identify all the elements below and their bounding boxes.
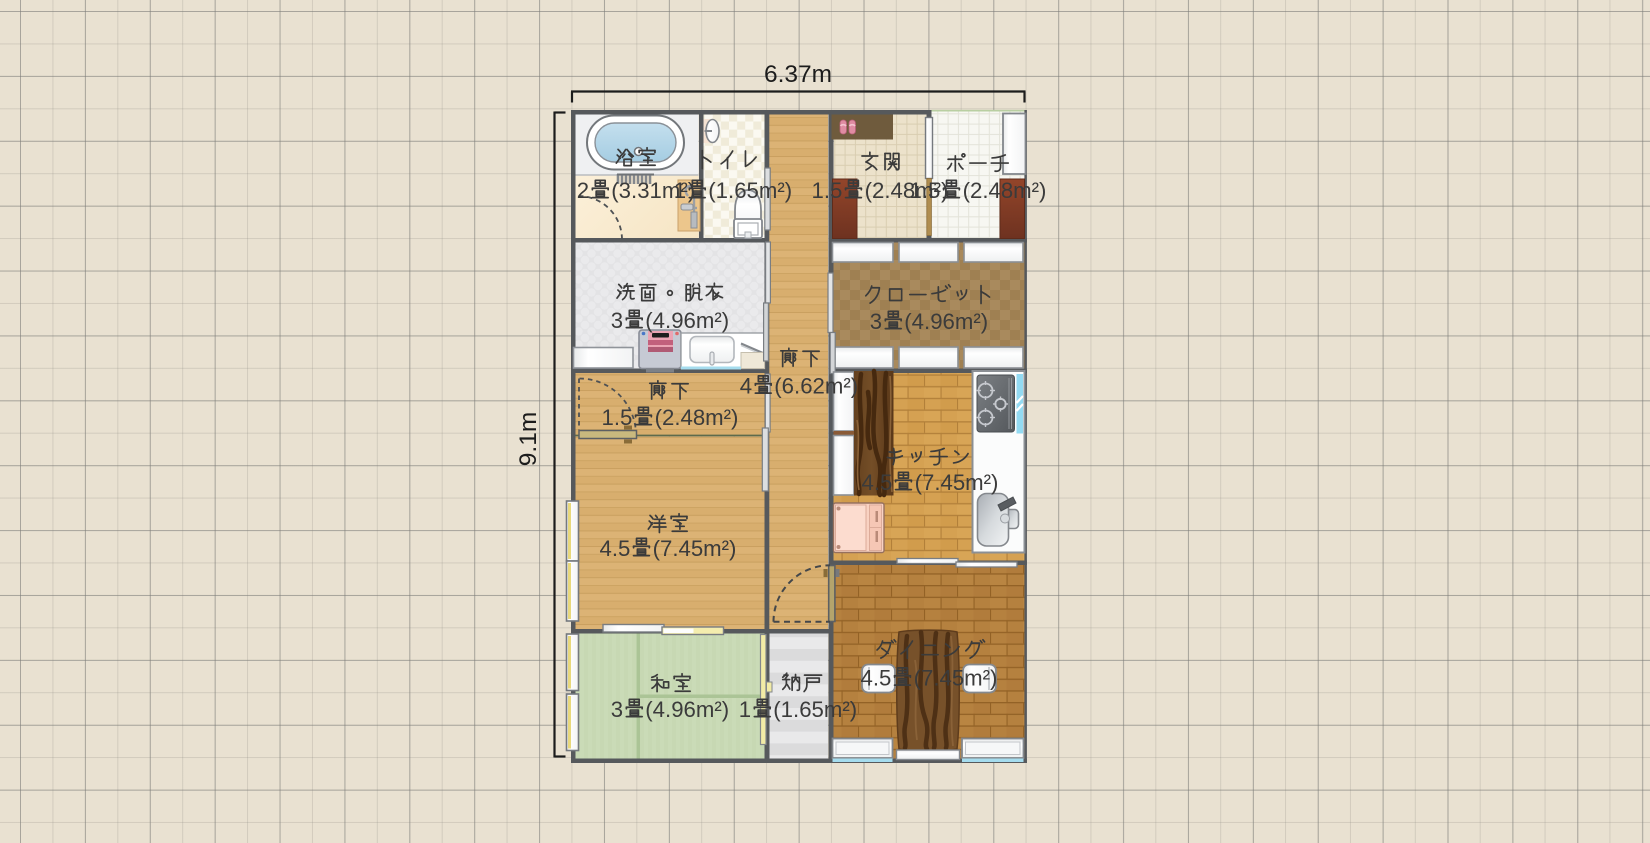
svg-text:3: 3 (611, 697, 623, 722)
svg-text:6.37m: 6.37m (764, 61, 832, 88)
svg-text:9.1m: 9.1m (515, 412, 542, 466)
svg-text:2: 2 (577, 178, 589, 203)
svg-text:(2.48m²): (2.48m²) (655, 405, 739, 430)
svg-text:1: 1 (674, 178, 686, 203)
svg-text:1.5: 1.5 (602, 405, 633, 430)
svg-text:1: 1 (739, 697, 751, 722)
svg-text:4: 4 (740, 374, 752, 399)
svg-text:(4.96m²): (4.96m²) (904, 309, 988, 334)
svg-text:(7.45m²): (7.45m²) (915, 470, 999, 495)
svg-text:1.5: 1.5 (910, 178, 941, 203)
svg-text:(4.96m²): (4.96m²) (645, 697, 729, 722)
svg-text:4.5: 4.5 (600, 536, 631, 561)
svg-text:3: 3 (870, 309, 882, 334)
svg-text:1.5: 1.5 (812, 178, 843, 203)
svg-text:3: 3 (611, 308, 623, 333)
svg-text:(7.45m²): (7.45m²) (914, 666, 998, 691)
svg-text:4.5: 4.5 (862, 470, 893, 495)
svg-text:(6.62m²): (6.62m²) (774, 374, 858, 399)
svg-text:(2.48m²): (2.48m²) (963, 178, 1047, 203)
svg-text:(1.65m²): (1.65m²) (773, 697, 857, 722)
svg-text:(4.96m²): (4.96m²) (645, 308, 729, 333)
svg-text:(7.45m²): (7.45m²) (653, 536, 737, 561)
svg-text:4.5: 4.5 (861, 666, 892, 691)
svg-text:(1.65m²): (1.65m²) (708, 178, 792, 203)
